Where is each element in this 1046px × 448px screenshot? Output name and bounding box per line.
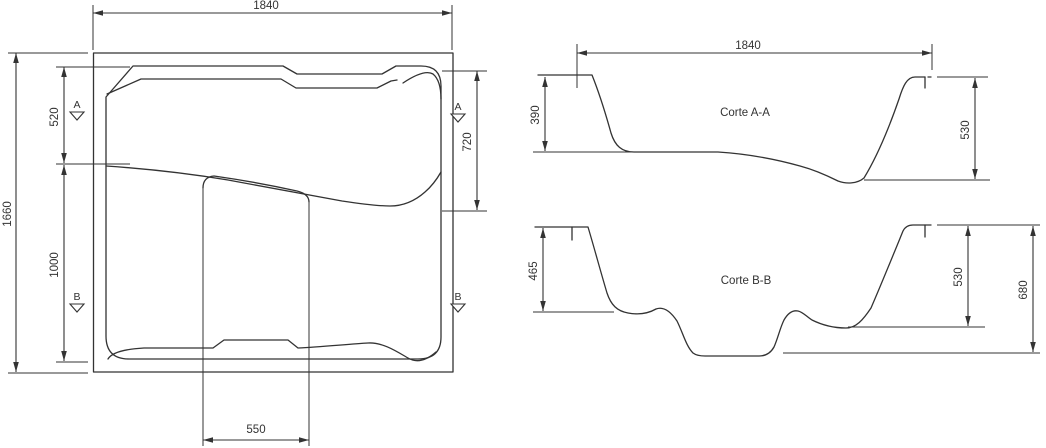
dim-label-bb-left: 465 [528, 261, 540, 280]
section-marker-b-left: B [70, 291, 84, 312]
section-a-letter: A [73, 99, 80, 111]
dim-label-aa-right: 530 [960, 120, 972, 139]
plan-basin-outline [106, 66, 441, 359]
plan-view: 1840 1660 520 1000 720 [2, 0, 487, 446]
section-bb-view: 465 530 680 Corte B-B [528, 225, 1040, 356]
plan-rim-contour-right [403, 73, 441, 99]
section-aa-dim-left: 390 [530, 77, 545, 151]
section-b-letter: B [73, 291, 80, 303]
plan-outer-rect [94, 53, 454, 372]
section-aa-view: 1840 390 530 Corte A-A [530, 40, 990, 183]
section-bb-profile [535, 225, 931, 356]
plan-dim-width: 1840 [93, 0, 452, 50]
section-marker-a-left: A [70, 99, 84, 120]
section-aa-dim-right: 530 [960, 78, 975, 179]
section-bb-dim-left: 465 [528, 228, 543, 311]
section-aa-dim-width: 1840 [577, 40, 932, 88]
dim-label-bb-total: 680 [1018, 280, 1030, 299]
plan-dim-lower-left: 1000 [49, 165, 88, 362]
plan-dim-upper-left: 520 [49, 67, 130, 164]
section-aa-title: Corte A-A [720, 107, 770, 119]
dim-label-aa-left: 390 [530, 105, 542, 124]
dim-label-aa-width: 1840 [735, 40, 761, 52]
dim-label-plan-height: 1660 [2, 201, 14, 227]
plan-bottom-contour [108, 340, 436, 361]
dim-label-plan-right: 720 [462, 132, 474, 151]
technical-drawing-canvas: 1840 1660 520 1000 720 [0, 0, 1046, 448]
section-b-letter: B [454, 291, 461, 303]
dim-label-bb-seat: 530 [953, 267, 965, 286]
dim-label-plan-width: 1840 [253, 0, 279, 12]
section-aa-profile [538, 75, 931, 183]
section-bb-title: Corte B-B [721, 275, 772, 287]
section-bb-dim-total: 680 [1018, 226, 1033, 352]
section-arrow-icon [70, 304, 84, 312]
dim-label-plan-upper-left: 520 [49, 107, 61, 126]
bathtub-technical-drawing: 1840 1660 520 1000 720 [0, 0, 1046, 448]
section-arrow-icon [70, 112, 84, 120]
plan-footwell-top [203, 176, 309, 202]
section-bb-dim-seat: 530 [953, 226, 968, 326]
dim-label-plan-lower-left: 1000 [49, 252, 61, 278]
section-a-letter: A [454, 101, 461, 113]
dim-label-plan-bottom: 550 [246, 424, 265, 436]
plan-dim-bottom: 550 [203, 424, 309, 440]
plan-rim-contour-left [107, 79, 397, 94]
plan-dim-right: 720 [442, 71, 487, 211]
